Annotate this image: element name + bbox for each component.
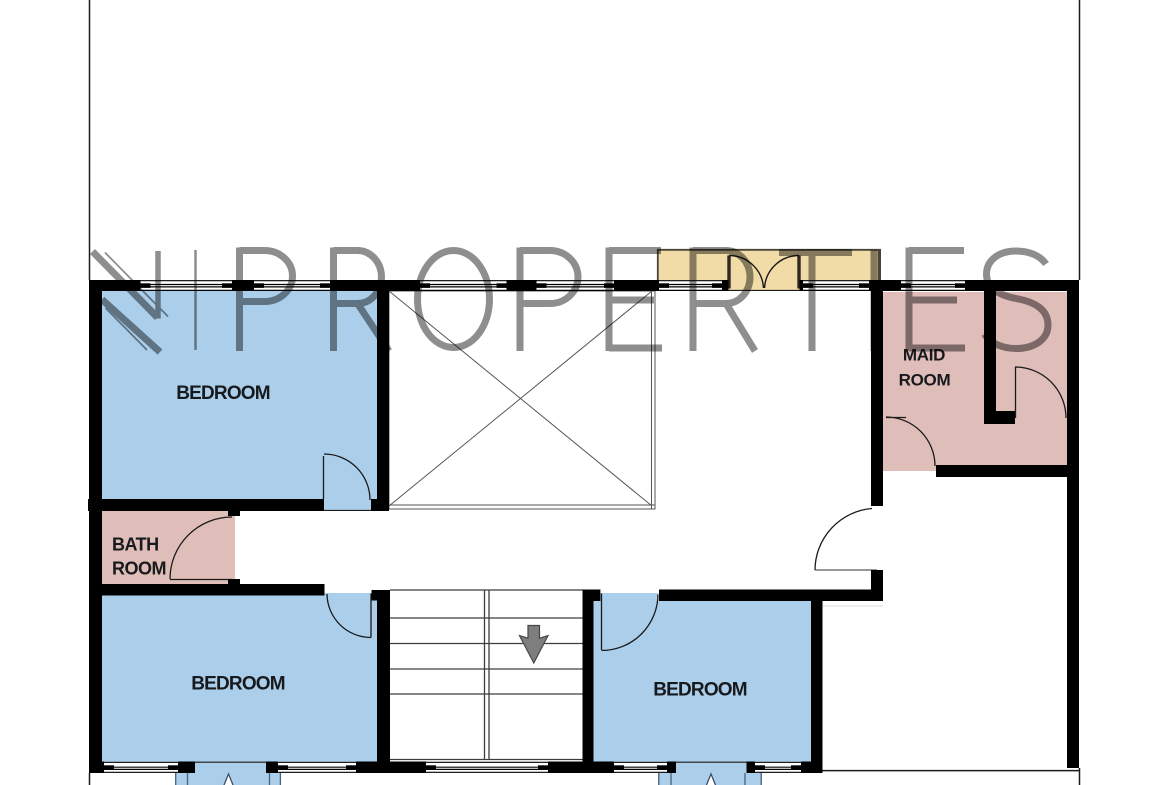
svg-text:BEDROOM: BEDROOM	[191, 674, 285, 695]
svg-text:BEDROOM: BEDROOM	[176, 383, 270, 404]
svg-text:ROOM: ROOM	[112, 559, 166, 579]
svg-text:BEDROOM: BEDROOM	[653, 680, 747, 701]
svg-text:ROOM: ROOM	[899, 371, 951, 390]
svg-text:BATH: BATH	[112, 535, 159, 555]
